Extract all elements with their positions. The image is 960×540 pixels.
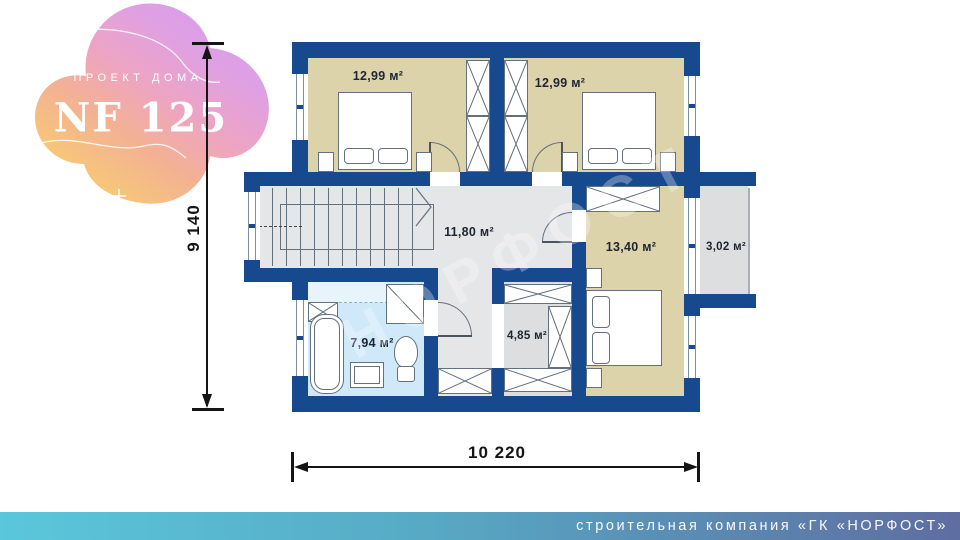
window-bedroom-2: [684, 76, 700, 136]
pillow: [622, 148, 652, 164]
door-opening-bedroom-2: [532, 172, 562, 186]
toilet-tank: [397, 366, 415, 382]
wall-balcony-bottom: [700, 294, 756, 308]
dim-tick-bottom: [192, 408, 224, 411]
door-leaf-bedroom-3: [542, 241, 572, 243]
nightstand: [586, 368, 602, 388]
sink-vanity: [350, 362, 384, 388]
balcony-floor: [700, 186, 748, 294]
pillow: [378, 148, 408, 164]
wall-balcony-top: [700, 172, 756, 186]
nightstand: [416, 152, 432, 172]
window-stairs: [244, 192, 260, 260]
toilet: [394, 336, 418, 368]
room-label-bedroom-3: 13,40 м²: [606, 240, 657, 254]
wardrobe-cabinet: [586, 186, 660, 212]
wall-bedrooms-center: [490, 58, 504, 172]
pillow: [592, 332, 610, 364]
room-label-bedroom-2: 12,99 м²: [535, 76, 586, 90]
wall-bathroom-top: [244, 268, 438, 282]
door-opening-bedroom-1: [430, 172, 460, 186]
wardrobe-cabinet: [438, 368, 492, 394]
door-opening-wardrobe: [492, 304, 504, 368]
shower: [386, 284, 424, 324]
stairs-center-line: [254, 226, 302, 227]
bathtub: [310, 314, 344, 394]
wardrobe-cabinet: [504, 368, 572, 392]
wardrobe-cabinet: [466, 116, 490, 172]
pillow: [344, 148, 374, 164]
dim-value-height: 9 140: [184, 204, 204, 252]
room-label-balcony: 3,02 м²: [706, 241, 746, 253]
dim-arrow-up: [202, 45, 212, 59]
window-bedroom-3: [684, 316, 700, 378]
window-bedroom-1: [292, 74, 308, 140]
balcony-door: [684, 198, 700, 294]
window-bathroom: [292, 300, 308, 376]
dim-arrow-down: [202, 394, 212, 408]
company-name: строительная компания «ГК «НОРФОСТ»: [576, 518, 948, 534]
nightstand: [586, 268, 602, 288]
stairs-flight-outline: [280, 204, 434, 250]
dim-arrow-right: [684, 462, 698, 472]
room-label-wardrobe: 4,85 м²: [507, 330, 547, 342]
room-label-hall: 11,80 м²: [444, 225, 494, 239]
nightstand: [660, 152, 676, 172]
door-opening-bathroom: [424, 300, 438, 336]
wardrobe-cabinet: [504, 116, 528, 172]
nightstand: [318, 152, 334, 172]
door-leaf-bathroom: [438, 335, 472, 337]
pillow: [592, 296, 610, 328]
room-label-bedroom-1: 12,99 м²: [353, 69, 404, 83]
door-opening-bedroom-3: [572, 210, 586, 242]
dim-line-vertical: [206, 48, 208, 406]
room-label-bathroom: 7,94 м²: [350, 336, 393, 350]
footer-bar: строительная компания «ГК «НОРФОСТ»: [0, 512, 960, 540]
stairs-direction-arrow: [414, 186, 434, 228]
pillow: [588, 148, 618, 164]
wall-top: [292, 42, 700, 58]
dim-value-width: 10 220: [468, 443, 526, 463]
dim-line-horizontal: [297, 466, 695, 468]
wall-bottom: [292, 396, 700, 412]
wardrobe-cabinet: [548, 306, 572, 368]
balcony-railing: [748, 188, 750, 294]
wardrobe-cabinet: [466, 60, 490, 116]
nightstand: [562, 152, 578, 172]
bathroom-counter: [308, 282, 388, 303]
wardrobe-cabinet: [504, 60, 528, 116]
dim-arrow-left: [294, 462, 308, 472]
wall-wardrobe-top: [492, 268, 572, 282]
wardrobe-cabinet: [504, 284, 572, 304]
wall-bedrooms-bottom: [244, 172, 700, 186]
